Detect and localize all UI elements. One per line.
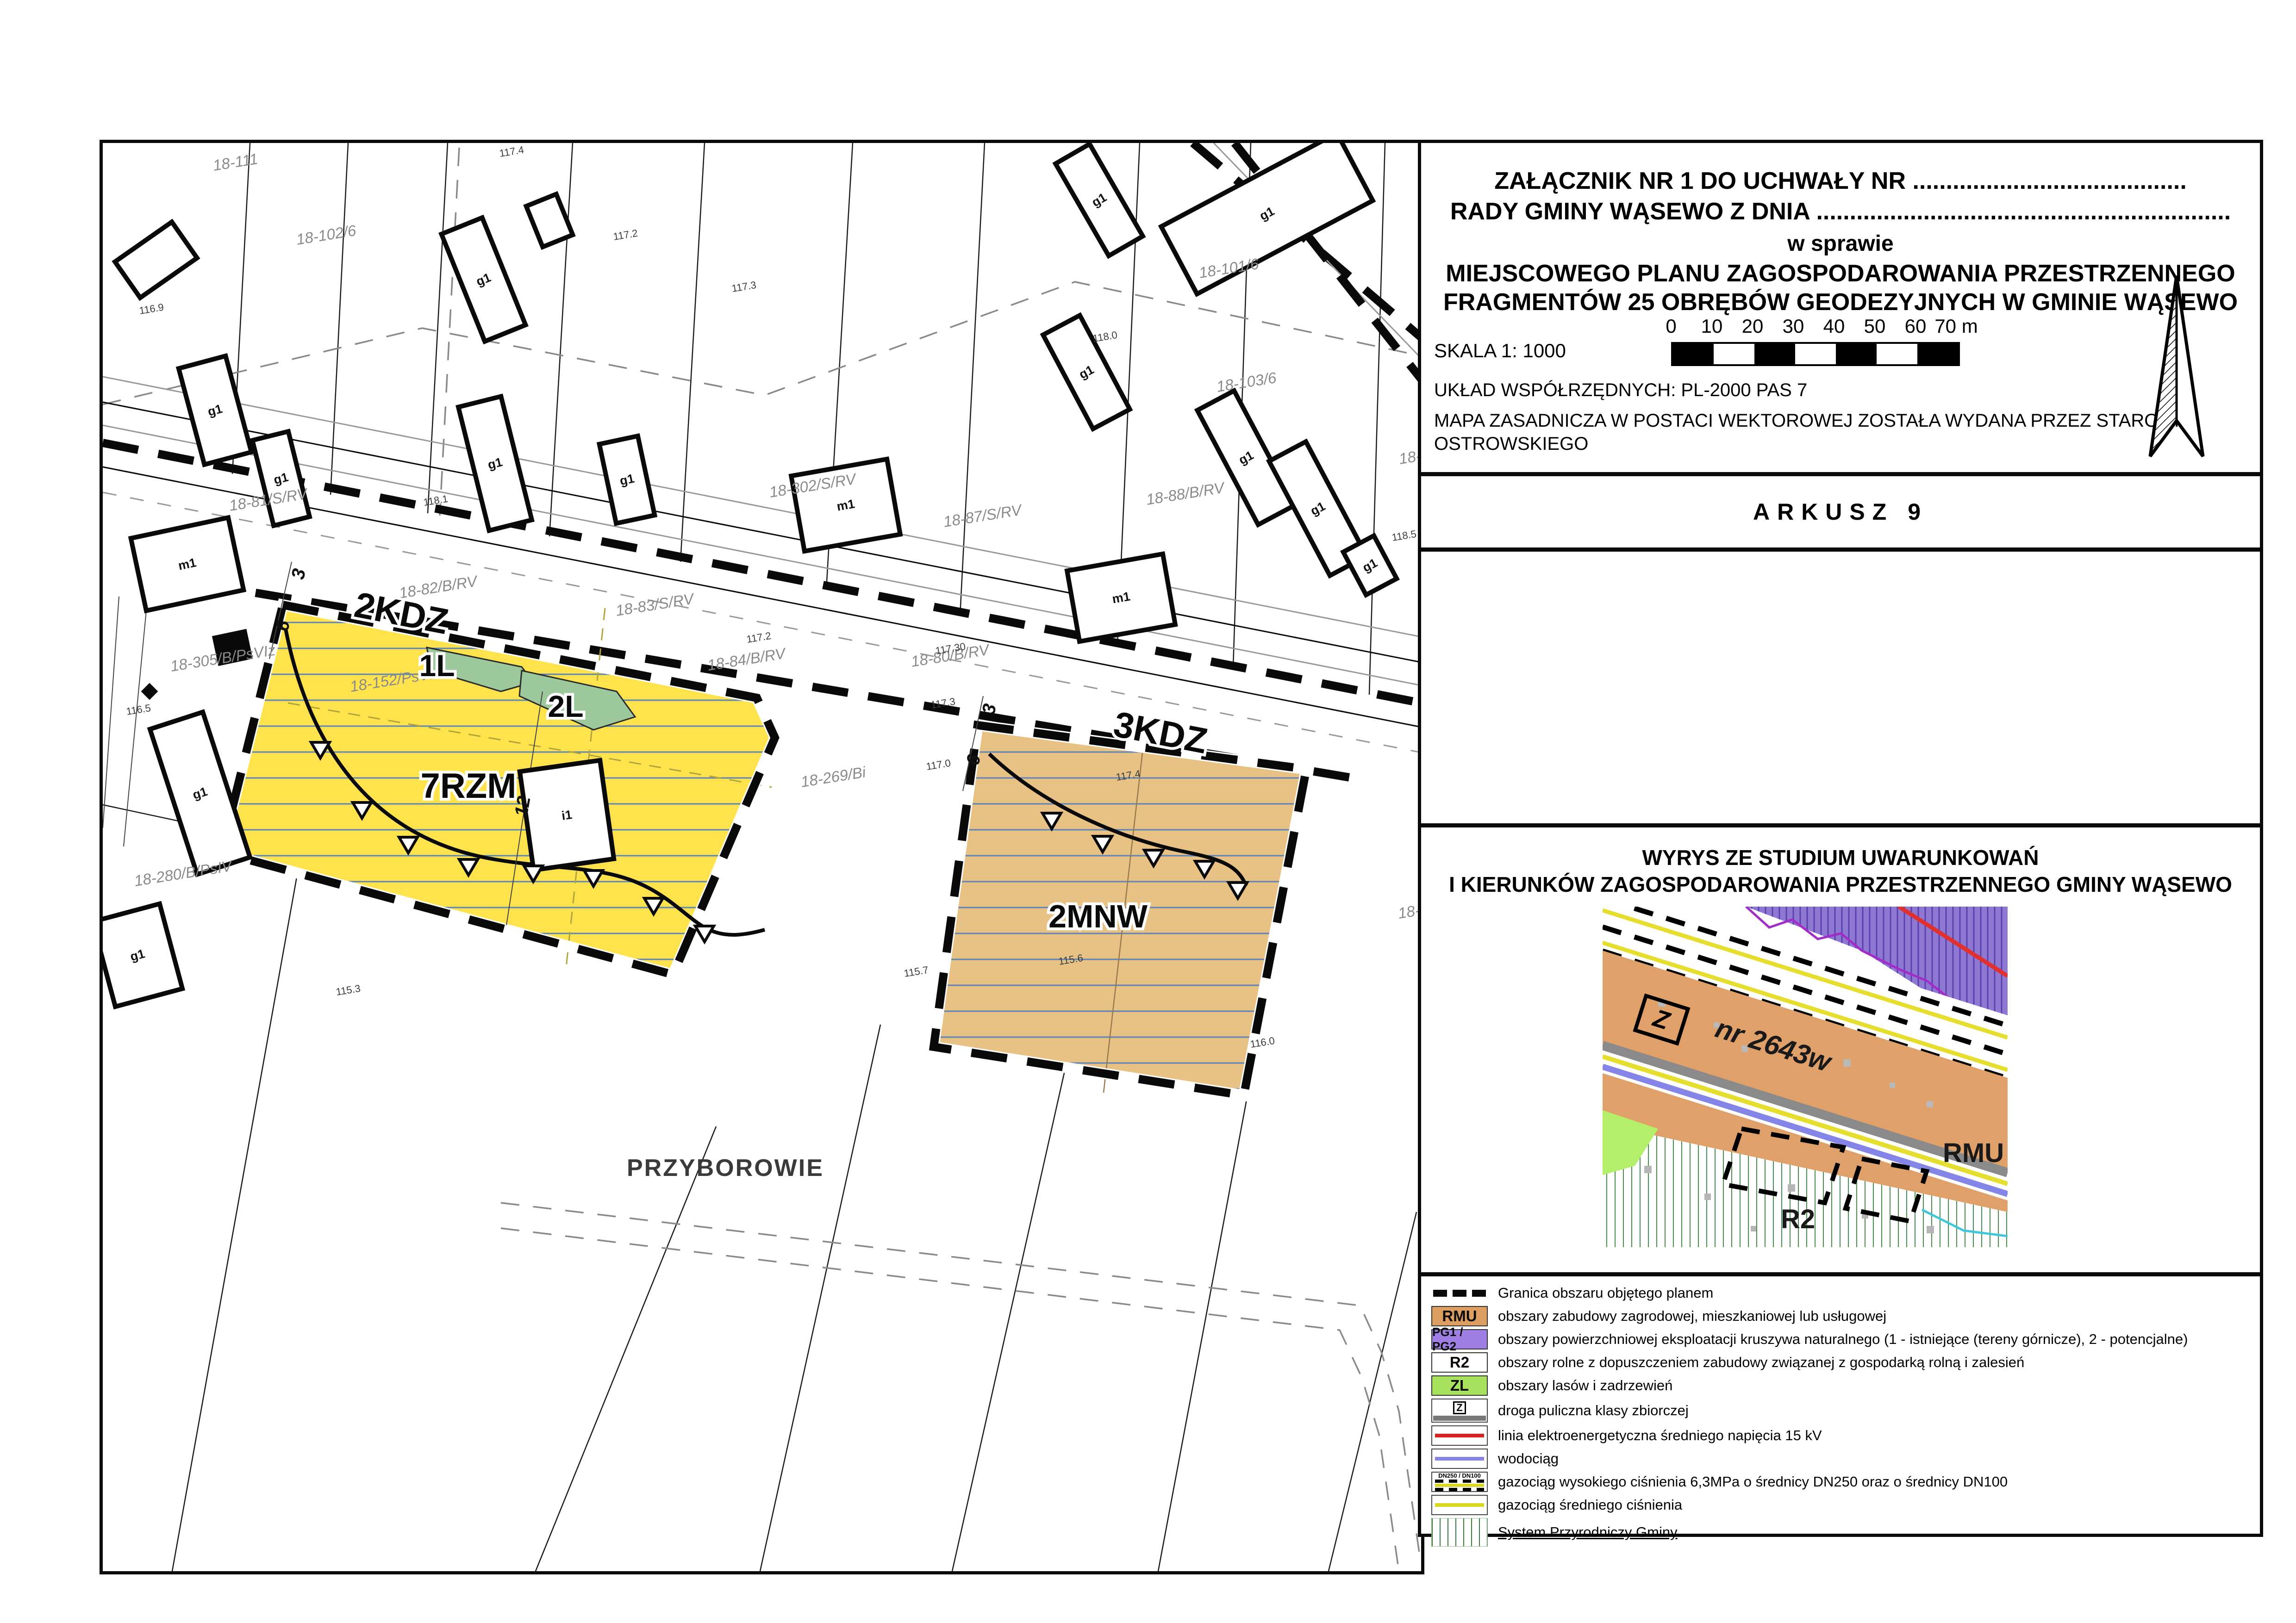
title-line-2: RADY GMINY WĄSEWO Z DNIA ...............… bbox=[1421, 198, 2260, 225]
parcel-label: 18-88/B/RV bbox=[1145, 479, 1227, 508]
building: g1 bbox=[252, 431, 310, 526]
elevation-label: 116.9 bbox=[138, 301, 165, 317]
building: m1 bbox=[131, 517, 244, 610]
legend-row-11: System Przyrodniczy Gminy bbox=[1431, 1518, 2251, 1547]
legend-swatch bbox=[1431, 1518, 1488, 1547]
dash-icon bbox=[1472, 1290, 1486, 1297]
zone-label-7rzm: 7RZM bbox=[421, 766, 517, 806]
scalebar-tick: 0 bbox=[1666, 315, 1676, 337]
elevation-label: 117.3 bbox=[731, 279, 757, 294]
building: i1 bbox=[520, 760, 614, 870]
parcel-label: 18-83/S/RV bbox=[614, 590, 696, 619]
scalebar-segment bbox=[1673, 344, 1714, 364]
coord-system-note: UKŁAD WSPÓŁRZĘDNYCH: PL-2000 PAS 7 bbox=[1434, 380, 1807, 401]
elevation-label: 117.2 bbox=[746, 630, 772, 645]
legend-swatch: ZL bbox=[1431, 1375, 1488, 1396]
building-label: i1 bbox=[561, 808, 573, 823]
basemap-note-2: OSTROWSKIEGO bbox=[1434, 434, 1588, 454]
wyrys-header-1: WYRYS ZE STUDIUM UWARUNKOWAŃ bbox=[1421, 845, 2260, 870]
treeline-triangle-icon bbox=[695, 926, 714, 942]
building bbox=[115, 222, 197, 298]
title-subject: w sprawie bbox=[1421, 231, 2260, 256]
scalebar-segment bbox=[1836, 344, 1877, 364]
gas-dash-icon bbox=[1435, 1480, 1484, 1483]
legend-label: linia elektroenergetyczna średniego napi… bbox=[1498, 1427, 1822, 1444]
elevation-label: 117.0 bbox=[925, 757, 952, 772]
legend-swatch: R2 bbox=[1431, 1352, 1488, 1373]
legend-row-1: Granica obszaru objętego planem bbox=[1431, 1283, 2251, 1303]
legend-swatch bbox=[1431, 1495, 1488, 1515]
legend-label: obszary powierzchniowej eksploatacji kru… bbox=[1498, 1331, 2188, 1348]
parcel-label: 18-84/B/RV bbox=[706, 644, 788, 674]
legend-row-7: linia elektroenergetyczna średniego napi… bbox=[1431, 1425, 2251, 1446]
building: g1 bbox=[458, 397, 532, 531]
place-label: PRZYBOROWIE bbox=[627, 1155, 824, 1181]
legend-swatch bbox=[1431, 1425, 1488, 1446]
parcel-label: 18-111 bbox=[212, 150, 259, 174]
legend-row-10: gazociąg średniego ciśnienia bbox=[1431, 1495, 2251, 1515]
scalebar bbox=[1671, 342, 1960, 366]
wyrys-header-2: I KIERUNKÓW ZAGOSPODAROWANIA PRZESTRZENN… bbox=[1421, 872, 2260, 897]
building: m1 bbox=[1067, 554, 1175, 641]
parcel-label: 18-102/6 bbox=[295, 222, 357, 248]
basemap-note-1: MAPA ZASADNICZA W POSTACI WEKTOROWEJ ZOS… bbox=[1434, 410, 2195, 431]
elevation-label: 116.5 bbox=[125, 702, 152, 717]
scalebar-tick: 20 bbox=[1742, 315, 1764, 337]
plan-sheet: g1m1g1g1g1g1m1g1g1g1g1g1m1g1i1g1g1 18-11… bbox=[0, 0, 2296, 1623]
parcel-label: 18-269/Bi bbox=[799, 763, 867, 790]
scalebar-segment bbox=[1877, 344, 1917, 364]
legend-label: obszary lasów i zadrzewień bbox=[1498, 1377, 1672, 1394]
elevation-label: 115.7 bbox=[903, 964, 930, 979]
elevation-label: 117.4 bbox=[499, 144, 525, 159]
legend-label: gazociąg średniego ciśnienia bbox=[1498, 1497, 1682, 1513]
building: g1 bbox=[442, 218, 526, 341]
gas-yellow-icon bbox=[1435, 1484, 1484, 1486]
legend-label: gazociąg wysokiego ciśnienia 6,3MPa o śr… bbox=[1498, 1474, 2008, 1490]
building-label: g1 bbox=[618, 472, 636, 488]
building-footprint bbox=[526, 194, 573, 247]
road-bar-icon bbox=[1433, 1416, 1486, 1421]
building bbox=[526, 194, 573, 247]
road-class-icon: Z bbox=[1453, 1401, 1466, 1414]
dimension-label: 3 bbox=[287, 567, 310, 581]
building: g1 bbox=[1055, 144, 1143, 256]
elevation-label: 118.0 bbox=[1092, 329, 1118, 344]
title-block: ZAŁĄCZNIK NR 1 DO UCHWAŁY NR ...........… bbox=[1421, 143, 2260, 476]
legend-swatch: PG1 / PG2 bbox=[1431, 1329, 1488, 1349]
legend-label: Granica obszaru objętego planem bbox=[1498, 1285, 1713, 1301]
north-arrow-icon bbox=[2146, 274, 2207, 459]
title-line-3: MIEJSCOWEGO PLANU ZAGOSPODAROWANIA PRZES… bbox=[1421, 260, 2260, 287]
legend-row-4: R2obszary rolne z dopuszczeniem zabudowy… bbox=[1431, 1352, 2251, 1373]
legend-row-3: PG1 / PG2obszary powierzchniowej eksploa… bbox=[1431, 1329, 2251, 1349]
legend-swatch: Z bbox=[1431, 1399, 1488, 1423]
legend-row-2: RMUobszary zabudowy zagrodowej, mieszkan… bbox=[1431, 1306, 2251, 1326]
building: g1 bbox=[599, 436, 655, 523]
elevation-label: 117.2 bbox=[612, 227, 639, 243]
map-canvas: g1m1g1g1g1g1m1g1g1g1g1g1m1g1i1g1g1 18-11… bbox=[103, 143, 1421, 1571]
zone-label-2l: 2L bbox=[548, 689, 583, 723]
scalebar-ticks: 010203040506070 m bbox=[1671, 315, 1995, 338]
legend-swatch bbox=[1431, 1449, 1488, 1469]
dash-icon bbox=[1433, 1290, 1447, 1297]
line-icon bbox=[1435, 1457, 1484, 1461]
scalebar-segment bbox=[1795, 344, 1836, 364]
scalebar-tick: 70 m bbox=[1934, 315, 1978, 337]
scalebar-segment bbox=[1714, 344, 1754, 364]
gas-dash-icon bbox=[1435, 1488, 1484, 1491]
parcel-label: 18-103/6 bbox=[1215, 369, 1278, 395]
scalebar-tick: 40 bbox=[1823, 315, 1845, 337]
parcel-label: 18-87/S/RV bbox=[942, 501, 1024, 530]
scalebar-segment bbox=[1917, 344, 1958, 364]
zone-label-1l: 1L bbox=[419, 648, 455, 683]
empty-section bbox=[1421, 552, 2260, 827]
elevation-label: 115.3 bbox=[335, 983, 362, 998]
studium-inset-map: Z nr 2643w RMU R2 bbox=[1603, 907, 2008, 1247]
legend-label: droga puliczna klasy zbiorczej bbox=[1498, 1402, 1689, 1419]
legend-swatch: DN250 / DN100 bbox=[1431, 1472, 1488, 1492]
title-line-1: ZAŁĄCZNIK NR 1 DO UCHWAŁY NR ...........… bbox=[1421, 167, 2260, 195]
legend-swatch: RMU bbox=[1431, 1306, 1488, 1326]
info-panel: ZAŁĄCZNIK NR 1 DO UCHWAŁY NR ...........… bbox=[1418, 140, 2263, 1537]
parcel-label: 18-280/B/PsIV bbox=[133, 857, 234, 889]
line-icon bbox=[1435, 1434, 1484, 1437]
legend-label: wodociąg bbox=[1498, 1450, 1559, 1467]
title-line-4: FRAGMENTÓW 25 OBRĘBÓW GEODEZYJNYCH W GMI… bbox=[1421, 288, 2260, 316]
legend-label: obszary zabudowy zagrodowej, mieszkaniow… bbox=[1498, 1308, 1886, 1325]
legend-label: System Przyrodniczy Gminy bbox=[1498, 1524, 1678, 1541]
line-icon bbox=[1435, 1503, 1484, 1507]
legend-label: obszary rolne z dopuszczeniem zabudowy z… bbox=[1498, 1354, 2024, 1371]
elevation-label: 118.1 bbox=[423, 493, 449, 508]
zone-label-2mnw: 2MNW bbox=[1048, 898, 1148, 934]
legend-section: Granica obszaru objętego planemRMUobszar… bbox=[1421, 1276, 2260, 1534]
wyrys-section: WYRYS ZE STUDIUM UWARUNKOWAŃ I KIERUNKÓW… bbox=[1421, 827, 2260, 1276]
legend-row-8: wodociąg bbox=[1431, 1449, 2251, 1469]
scalebar-segment bbox=[1754, 344, 1795, 364]
arkusz-label: ARKUSZ 9 bbox=[1753, 498, 1928, 525]
legend-row-5: ZLobszary lasów i zadrzewień bbox=[1431, 1375, 2251, 1396]
arkusz-row: ARKUSZ 9 bbox=[1421, 476, 2260, 552]
building: g1 bbox=[103, 904, 182, 1007]
scalebar-tick: 30 bbox=[1783, 315, 1804, 337]
inset-rmu-label: RMU bbox=[1943, 1138, 2004, 1168]
scale-label: SKALA 1: 1000 bbox=[1434, 340, 1566, 362]
legend-swatch bbox=[1431, 1283, 1488, 1303]
scalebar-tick: 60 bbox=[1905, 315, 1927, 337]
inset-canvas: Z nr 2643w RMU R2 bbox=[1603, 907, 2008, 1247]
map-frame: g1m1g1g1g1g1m1g1g1g1g1g1m1g1i1g1g1 18-11… bbox=[100, 140, 1424, 1574]
elevation-label: 118.5 bbox=[1391, 528, 1417, 543]
legend-rows: Granica obszaru objętego planemRMUobszar… bbox=[1431, 1283, 2251, 1549]
inset-r2-label: R2 bbox=[1781, 1204, 1815, 1234]
dash-icon bbox=[1453, 1290, 1466, 1297]
scalebar-tick: 50 bbox=[1864, 315, 1886, 337]
building-footprint bbox=[115, 222, 197, 298]
legend-row-6: Zdroga puliczna klasy zbiorczej bbox=[1431, 1399, 2251, 1423]
gas-diameter-text: DN250 / DN100 bbox=[1438, 1473, 1481, 1479]
legend-row-9: DN250 / DN100gazociąg wysokiego ciśnieni… bbox=[1431, 1472, 2251, 1492]
scalebar-tick: 10 bbox=[1701, 315, 1723, 337]
